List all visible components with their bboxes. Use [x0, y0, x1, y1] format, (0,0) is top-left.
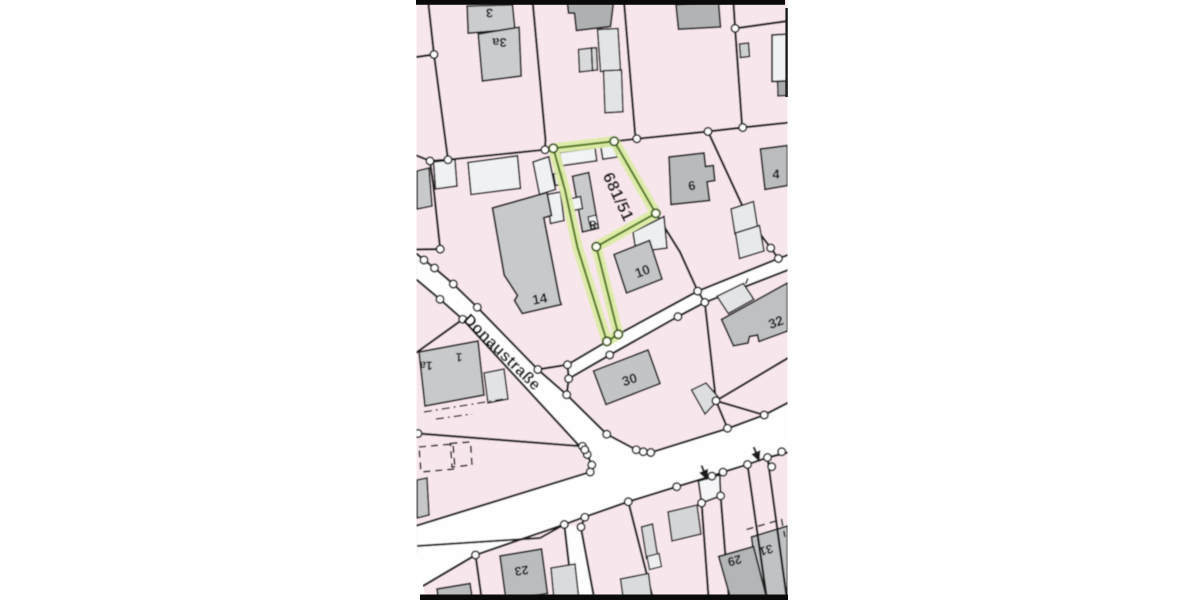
svg-text:3a: 3a	[492, 35, 507, 50]
svg-text:8: 8	[589, 217, 596, 232]
svg-text:23: 23	[514, 563, 530, 579]
svg-text:1a: 1a	[419, 359, 433, 373]
svg-text:14: 14	[531, 290, 549, 307]
svg-text:3: 3	[486, 6, 493, 21]
svg-text:4: 4	[772, 167, 780, 182]
svg-text:1: 1	[455, 350, 462, 364]
